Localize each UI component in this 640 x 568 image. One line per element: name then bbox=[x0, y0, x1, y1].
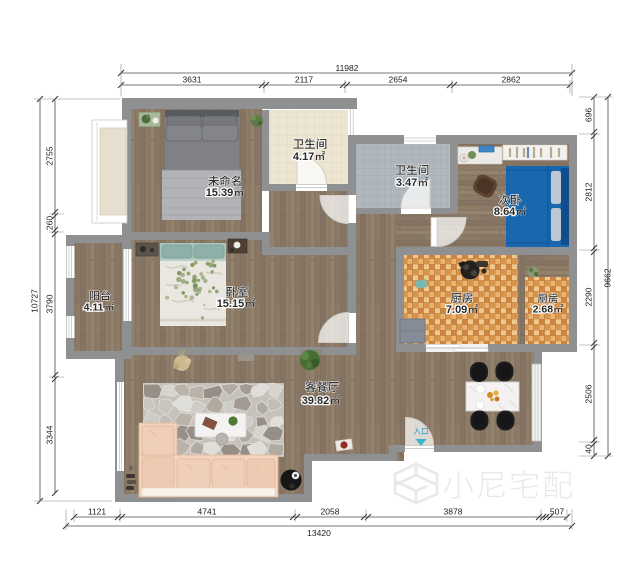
svg-text:1121: 1121 bbox=[88, 507, 107, 517]
svg-text:2812: 2812 bbox=[584, 182, 594, 201]
svg-text:2506: 2506 bbox=[584, 384, 594, 403]
svg-text:2862: 2862 bbox=[502, 75, 521, 85]
svg-text:2.68: 2.68 bbox=[533, 304, 554, 316]
svg-text:2654: 2654 bbox=[389, 75, 408, 85]
svg-text:15.15: 15.15 bbox=[217, 298, 245, 310]
svg-text:3790: 3790 bbox=[45, 294, 55, 313]
svg-text:8.64: 8.64 bbox=[494, 206, 516, 218]
svg-text:2755: 2755 bbox=[45, 146, 55, 165]
svg-text:40: 40 bbox=[584, 444, 594, 454]
svg-text:696: 696 bbox=[584, 108, 594, 122]
svg-text:39.82: 39.82 bbox=[302, 395, 330, 407]
svg-text:7.09: 7.09 bbox=[446, 304, 467, 316]
svg-text:4741: 4741 bbox=[198, 507, 217, 517]
svg-text:15.39: 15.39 bbox=[206, 187, 234, 199]
svg-text:9662: 9662 bbox=[603, 268, 613, 287]
svg-text:260: 260 bbox=[45, 216, 55, 230]
svg-text:2058: 2058 bbox=[321, 507, 340, 517]
svg-text:11982: 11982 bbox=[335, 63, 358, 73]
svg-text:4.17: 4.17 bbox=[293, 151, 314, 163]
svg-text:13420: 13420 bbox=[307, 528, 331, 538]
svg-text:4.11: 4.11 bbox=[84, 302, 104, 314]
svg-text:2117: 2117 bbox=[295, 75, 314, 85]
svg-text:10727: 10727 bbox=[30, 289, 40, 313]
svg-text:507: 507 bbox=[550, 507, 564, 517]
svg-text:2290: 2290 bbox=[584, 287, 594, 306]
svg-text:3878: 3878 bbox=[444, 507, 463, 517]
svg-text:3.47: 3.47 bbox=[396, 177, 417, 189]
svg-text:3344: 3344 bbox=[45, 425, 55, 444]
svg-text:3631: 3631 bbox=[183, 75, 202, 85]
